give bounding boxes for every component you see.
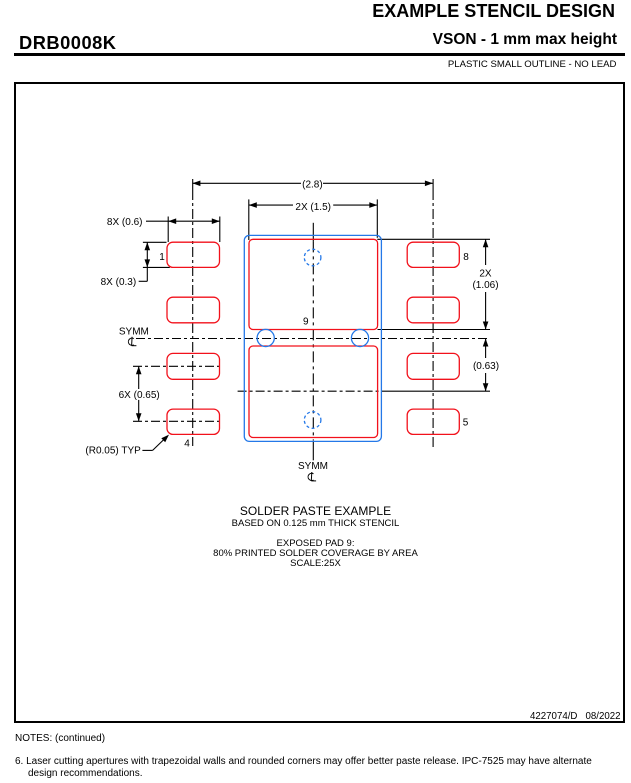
svg-text:8X (0.3): 8X (0.3) [101,277,137,288]
svg-text:9: 9 [303,317,309,328]
svg-text:(2.8): (2.8) [302,179,323,190]
svg-text:(R0.05) TYP: (R0.05) TYP [85,446,141,457]
svg-text:5: 5 [463,418,469,429]
svg-text:2X: 2X [479,269,492,280]
svg-text:4: 4 [184,438,190,449]
svg-text:1: 1 [159,252,165,263]
svg-text:SYMM: SYMM [298,461,328,472]
svg-text:8: 8 [463,252,469,263]
svg-text:6X (0.65): 6X (0.65) [119,390,160,401]
svg-text:2X (1.5): 2X (1.5) [295,202,331,213]
svg-text:8X (0.6): 8X (0.6) [107,217,143,228]
svg-text:SYMM: SYMM [119,327,149,338]
svg-text:(0.63): (0.63) [473,361,499,372]
svg-text:(1.06): (1.06) [472,280,498,291]
